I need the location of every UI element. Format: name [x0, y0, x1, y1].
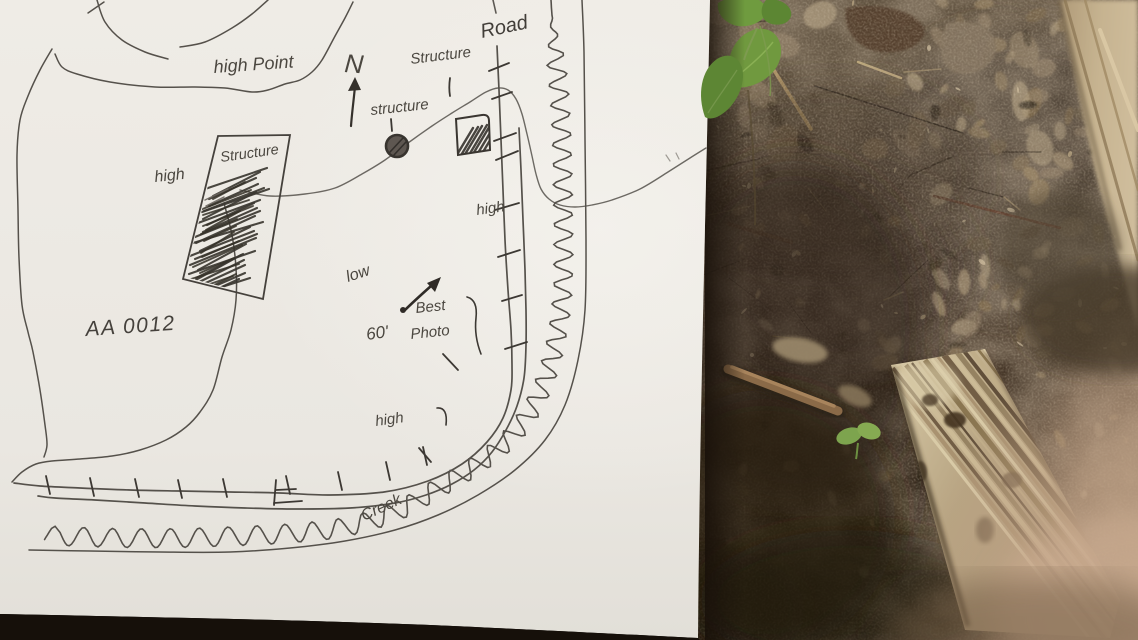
svg-text:Best: Best	[415, 297, 447, 317]
svg-text:high: high	[154, 166, 186, 186]
svg-text:N: N	[344, 48, 365, 79]
svg-text:60': 60'	[365, 322, 390, 344]
